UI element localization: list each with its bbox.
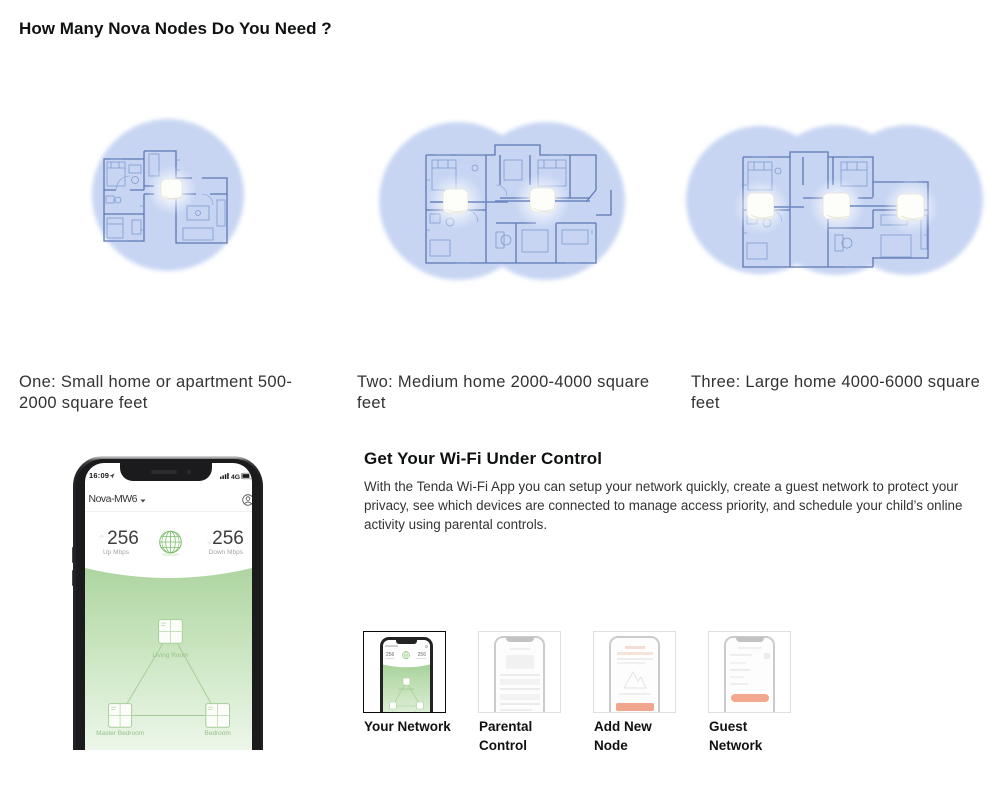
- svg-text:Bedroom: Bedroom: [204, 730, 230, 737]
- svg-text:Master Bedroom: Master Bedroom: [383, 710, 404, 713]
- svg-text:Master Bedroom: Master Bedroom: [96, 730, 144, 737]
- svg-text:Bedroom: Bedroom: [414, 710, 426, 713]
- svg-text:Living Room: Living Room: [398, 687, 414, 691]
- svg-text:4G: 4G: [231, 474, 240, 480]
- svg-text:Living Room: Living Room: [152, 652, 188, 659]
